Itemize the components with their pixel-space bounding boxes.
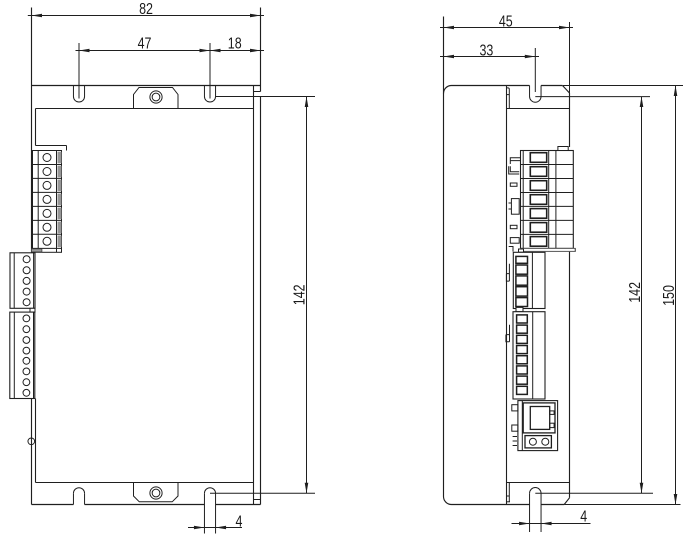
svg-text:18: 18 [228,35,242,53]
svg-text:142: 142 [291,284,309,305]
svg-text:82: 82 [139,1,153,19]
svg-text:33: 33 [479,42,493,60]
svg-text:47: 47 [138,35,152,53]
svg-text:45: 45 [499,13,513,31]
svg-text:150: 150 [661,285,679,306]
svg-text:4: 4 [580,508,587,526]
svg-text:4: 4 [236,513,243,531]
svg-text:142: 142 [627,282,645,303]
